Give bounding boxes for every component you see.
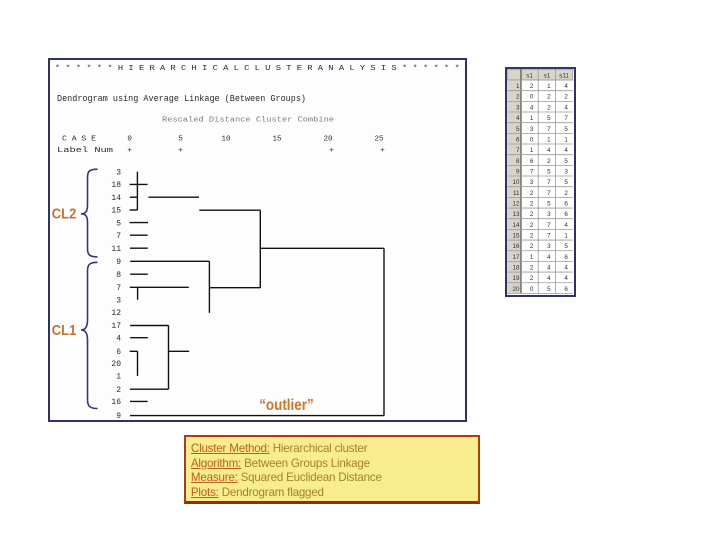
svg-text:5: 5 — [547, 168, 551, 175]
svg-text:7: 7 — [530, 168, 534, 175]
svg-text:0: 0 — [530, 286, 534, 293]
svg-text:7: 7 — [516, 147, 520, 154]
svg-text:7: 7 — [547, 179, 551, 186]
svg-text:6: 6 — [516, 136, 520, 143]
svg-text:3: 3 — [530, 126, 534, 133]
svg-text:1: 1 — [530, 115, 534, 122]
svg-text:4: 4 — [530, 104, 534, 111]
svg-text:5: 5 — [516, 126, 520, 133]
svg-text:16: 16 — [512, 243, 520, 250]
svg-text:5: 5 — [564, 243, 568, 250]
svg-text:7: 7 — [547, 232, 551, 239]
svg-text:18: 18 — [512, 265, 520, 272]
svg-text:6: 6 — [564, 200, 568, 207]
svg-text:5: 5 — [547, 286, 551, 293]
svg-text:3: 3 — [516, 104, 520, 111]
svg-text:2: 2 — [530, 211, 534, 218]
svg-text:3: 3 — [547, 211, 551, 218]
svg-text:2: 2 — [530, 83, 534, 90]
svg-text:4: 4 — [564, 275, 568, 282]
svg-text:4: 4 — [547, 265, 551, 272]
svg-text:1: 1 — [530, 254, 534, 261]
svg-text:11: 11 — [513, 190, 520, 197]
svg-text:2: 2 — [547, 94, 551, 101]
svg-text:s1: s1 — [526, 72, 533, 79]
svg-text:7: 7 — [547, 126, 551, 133]
svg-text:2: 2 — [530, 243, 534, 250]
svg-text:10: 10 — [512, 179, 520, 186]
svg-text:2: 2 — [530, 275, 534, 282]
svg-text:8: 8 — [516, 158, 520, 165]
svg-text:6: 6 — [564, 286, 568, 293]
svg-text:1: 1 — [516, 83, 520, 90]
svg-text:14: 14 — [512, 222, 520, 229]
svg-text:2: 2 — [530, 190, 534, 197]
svg-text:4: 4 — [547, 254, 551, 261]
svg-text:3: 3 — [547, 243, 551, 250]
svg-text:2: 2 — [516, 94, 520, 101]
svg-text:1: 1 — [530, 147, 534, 154]
svg-text:s11: s11 — [559, 72, 569, 79]
svg-text:5: 5 — [564, 158, 568, 165]
svg-text:3: 3 — [564, 168, 568, 175]
svg-text:2: 2 — [547, 104, 551, 111]
svg-text:6: 6 — [564, 211, 568, 218]
svg-text:4: 4 — [547, 275, 551, 282]
svg-text:12: 12 — [512, 200, 520, 207]
svg-text:0: 0 — [530, 136, 534, 143]
svg-text:2: 2 — [530, 265, 534, 272]
svg-text:6: 6 — [530, 158, 534, 165]
svg-text:2: 2 — [547, 158, 551, 165]
svg-text:s1: s1 — [544, 72, 551, 79]
svg-text:13: 13 — [512, 211, 520, 218]
svg-text:5: 5 — [564, 179, 568, 186]
svg-text:4: 4 — [516, 115, 520, 122]
svg-text:1: 1 — [547, 83, 551, 90]
svg-text:4: 4 — [564, 265, 568, 272]
svg-text:4: 4 — [564, 147, 568, 154]
svg-text:7: 7 — [547, 222, 551, 229]
svg-text:7: 7 — [564, 115, 568, 122]
svg-text:4: 4 — [564, 83, 568, 90]
svg-text:1: 1 — [564, 232, 568, 239]
svg-text:6: 6 — [564, 254, 568, 261]
svg-text:9: 9 — [516, 168, 520, 175]
svg-text:5: 5 — [547, 115, 551, 122]
svg-text:7: 7 — [547, 190, 551, 197]
svg-text:17: 17 — [512, 254, 520, 261]
svg-text:2: 2 — [564, 190, 568, 197]
svg-text:4: 4 — [547, 147, 551, 154]
svg-text:2: 2 — [564, 94, 568, 101]
svg-text:4: 4 — [564, 104, 568, 111]
svg-text:3: 3 — [530, 179, 534, 186]
svg-text:0: 0 — [530, 94, 534, 101]
svg-text:2: 2 — [530, 200, 534, 207]
svg-text:19: 19 — [512, 275, 520, 282]
svg-text:20: 20 — [512, 286, 520, 293]
svg-text:1: 1 — [564, 136, 568, 143]
svg-text:5: 5 — [564, 126, 568, 133]
svg-text:2: 2 — [530, 232, 534, 239]
svg-text:15: 15 — [512, 232, 520, 239]
svg-text:1: 1 — [547, 136, 551, 143]
svg-text:4: 4 — [564, 222, 568, 229]
svg-text:2: 2 — [530, 222, 534, 229]
svg-text:5: 5 — [547, 200, 551, 207]
